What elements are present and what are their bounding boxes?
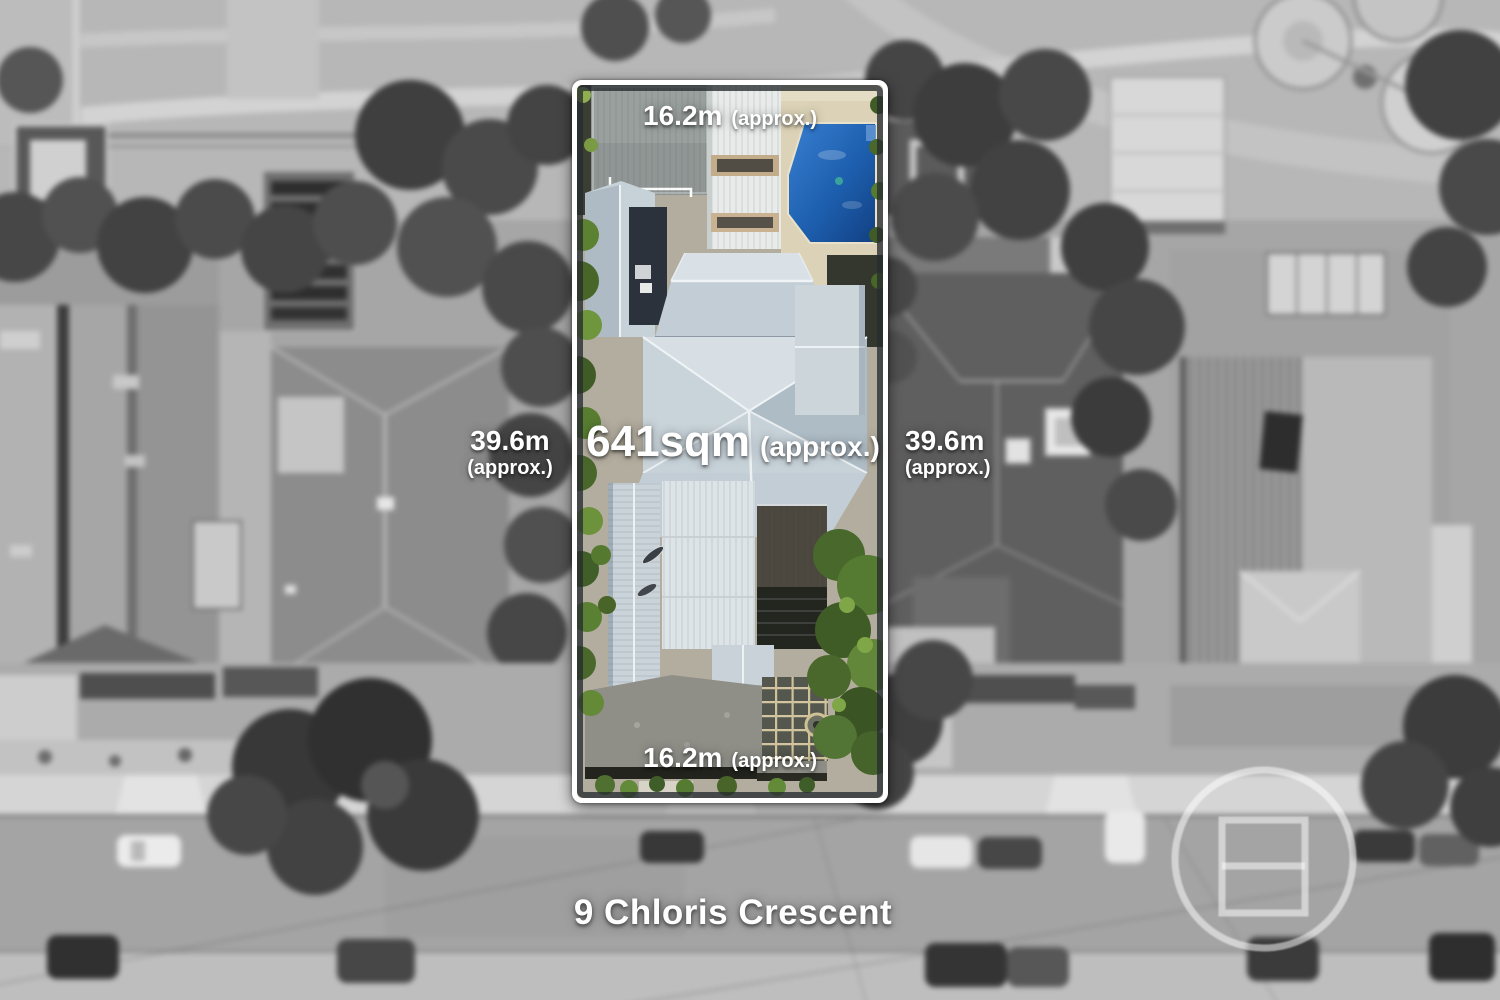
- dimension-qualifier: (approx.): [731, 750, 817, 772]
- land-area-label: 641sqm (approx.): [533, 419, 933, 465]
- dimension-value: 16.2m: [643, 101, 722, 132]
- land-area-value: 641sqm: [586, 419, 750, 465]
- aerial-property-image: 16.2m (approx.) 39.6m (approx.) 39.6m (a…: [0, 0, 1500, 1000]
- logo-circle-icon: [1175, 770, 1353, 948]
- swimming-pool: [788, 123, 876, 243]
- street-address-label: 9 Chloris Crescent: [483, 893, 983, 933]
- dimension-qualifier: (approx.): [731, 108, 817, 130]
- land-area-qualifier: (approx.): [760, 432, 880, 461]
- dimension-label-top-boundary: 16.2m (approx.): [572, 101, 888, 132]
- pergola: [757, 587, 827, 649]
- agency-watermark-logo: [1166, 760, 1366, 960]
- dimension-value: 16.2m: [643, 743, 722, 774]
- dimension-label-bottom-boundary: 16.2m (approx.): [572, 743, 888, 774]
